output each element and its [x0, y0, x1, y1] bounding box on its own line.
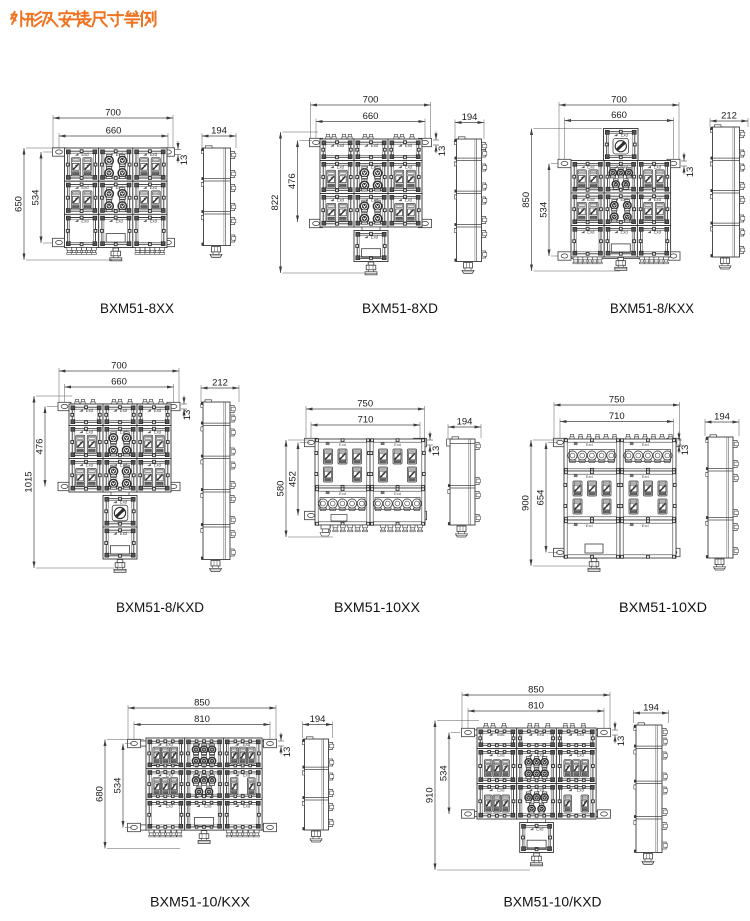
svg-text:750: 750: [609, 395, 625, 406]
svg-text:Exd: Exd: [339, 442, 346, 447]
svg-text:13: 13: [685, 167, 696, 178]
svg-text:0 1: 0 1: [618, 155, 623, 159]
svg-text:Exd: Exd: [577, 732, 585, 737]
svg-text:Exd: Exd: [654, 165, 662, 170]
svg-text:660: 660: [106, 126, 122, 137]
svg-text:710: 710: [358, 415, 374, 426]
svg-text:BXM51-8/KXX: BXM51-8/KXX: [610, 300, 695, 316]
svg-text:Exd: Exd: [337, 198, 345, 203]
svg-text:BXM51-8XD: BXM51-8XD: [362, 300, 438, 316]
svg-text:710: 710: [609, 411, 625, 422]
svg-text:194: 194: [643, 703, 659, 714]
svg-text:Exd: Exd: [166, 773, 174, 778]
svg-text:Exd: Exd: [537, 732, 545, 737]
svg-text:0 1: 0 1: [118, 521, 123, 525]
svg-text:194: 194: [310, 714, 326, 725]
svg-text:910: 910: [425, 787, 436, 803]
svg-text:Exd: Exd: [497, 732, 505, 737]
svg-text:Exd: Exd: [620, 230, 628, 235]
svg-text:660: 660: [363, 111, 379, 122]
svg-text:Exd: Exd: [337, 165, 345, 170]
svg-text:Exd: Exd: [587, 197, 595, 202]
svg-text:1015: 1015: [24, 471, 35, 492]
svg-text:Exd: Exd: [586, 442, 593, 447]
svg-text:Exd: Exd: [577, 753, 585, 758]
svg-text:660: 660: [611, 110, 627, 121]
svg-text:Exd: Exd: [81, 218, 89, 223]
svg-text:534: 534: [439, 765, 450, 781]
svg-text:654: 654: [536, 490, 547, 506]
svg-text:Exd: Exd: [587, 230, 595, 235]
svg-text:Exd: Exd: [86, 463, 94, 468]
svg-text:900: 900: [521, 495, 532, 511]
svg-text:850: 850: [521, 192, 532, 208]
svg-text:Exd: Exd: [621, 133, 629, 138]
svg-text:Exd: Exd: [642, 474, 649, 479]
svg-text:Exd: Exd: [654, 197, 662, 202]
svg-text:Exd: Exd: [150, 218, 158, 223]
svg-text:Exd: Exd: [116, 218, 124, 223]
svg-text:13: 13: [282, 747, 293, 758]
svg-text:BXM51-10XX: BXM51-10XX: [334, 599, 421, 615]
svg-text:476: 476: [35, 439, 46, 455]
svg-text:Exd: Exd: [339, 491, 346, 496]
svg-text:Exd: Exd: [166, 742, 174, 747]
svg-text:13: 13: [616, 736, 627, 747]
svg-text:Exd: Exd: [150, 185, 158, 190]
svg-text:Exd: Exd: [405, 143, 413, 148]
svg-text:Exd: Exd: [243, 742, 251, 747]
svg-text:Exd: Exd: [243, 803, 251, 808]
svg-text:Exd: Exd: [243, 773, 251, 778]
svg-text:Exd: Exd: [394, 442, 401, 447]
svg-text:Exd: Exd: [154, 430, 162, 435]
svg-text:700: 700: [111, 361, 127, 372]
svg-text:Exd: Exd: [371, 235, 379, 240]
svg-text:Exd: Exd: [536, 827, 544, 832]
svg-text:750: 750: [357, 399, 373, 410]
svg-text:194: 194: [457, 417, 473, 428]
svg-text:850: 850: [528, 685, 544, 696]
svg-text:Exd: Exd: [642, 442, 649, 447]
svg-text:BXM51-8/KXD: BXM51-8/KXD: [116, 599, 204, 615]
svg-text:13: 13: [182, 410, 193, 421]
svg-text:Exd: Exd: [150, 152, 158, 157]
svg-text:194: 194: [211, 126, 227, 137]
svg-text:452: 452: [288, 471, 299, 487]
svg-text:Exd: Exd: [586, 474, 593, 479]
svg-text:Exd: Exd: [394, 491, 401, 496]
svg-text:Exd: Exd: [120, 531, 128, 536]
svg-text:Exd: Exd: [120, 500, 128, 505]
svg-text:194: 194: [714, 412, 730, 423]
svg-text:650: 650: [14, 196, 25, 212]
svg-text:194: 194: [462, 112, 478, 123]
svg-text:Exd: Exd: [654, 230, 662, 235]
svg-text:700: 700: [105, 108, 121, 119]
svg-text:700: 700: [363, 95, 379, 106]
svg-text:Exd: Exd: [120, 408, 128, 413]
svg-text:212: 212: [212, 378, 228, 389]
svg-text:212: 212: [721, 111, 737, 122]
svg-text:534: 534: [539, 202, 550, 218]
svg-text:810: 810: [528, 701, 544, 712]
svg-text:580: 580: [276, 481, 287, 497]
svg-text:Exd: Exd: [154, 463, 162, 468]
svg-text:Exd: Exd: [577, 788, 585, 793]
svg-text:Exd: Exd: [371, 143, 379, 148]
svg-text:822: 822: [270, 195, 281, 211]
svg-text:850: 850: [194, 698, 210, 709]
svg-text:660: 660: [111, 377, 127, 388]
svg-text:476: 476: [287, 173, 298, 189]
svg-text:Exd: Exd: [154, 408, 162, 413]
svg-text:Exd: Exd: [497, 753, 505, 758]
svg-text:Exd: Exd: [587, 165, 595, 170]
svg-text:810: 810: [194, 714, 210, 725]
svg-text:Exd: Exd: [204, 803, 212, 808]
svg-text:680: 680: [95, 786, 106, 802]
svg-text:Exd: Exd: [81, 152, 89, 157]
svg-text:BXM51-8XX: BXM51-8XX: [100, 300, 175, 316]
svg-text:Exd: Exd: [642, 523, 649, 528]
svg-text:13: 13: [437, 146, 448, 157]
svg-text:Exd: Exd: [497, 788, 505, 793]
svg-text:13: 13: [431, 446, 442, 457]
svg-text:BXM51-10/KXX: BXM51-10/KXX: [150, 894, 251, 910]
svg-text:Exd: Exd: [86, 430, 94, 435]
svg-text:Exd: Exd: [81, 185, 89, 190]
svg-text:Exd: Exd: [586, 523, 593, 528]
svg-text:BXM51-10/KXD: BXM51-10/KXD: [504, 894, 602, 910]
svg-text:13: 13: [680, 445, 691, 456]
svg-text:Exd: Exd: [86, 408, 94, 413]
svg-text:534: 534: [113, 778, 124, 794]
svg-text:534: 534: [31, 190, 42, 206]
svg-text:Exd: Exd: [337, 143, 345, 148]
svg-text:BXM51-10XD: BXM51-10XD: [619, 599, 707, 615]
svg-text:Exd: Exd: [405, 198, 413, 203]
svg-text:700: 700: [611, 95, 627, 106]
svg-text:Exd: Exd: [166, 803, 174, 808]
svg-text:13: 13: [179, 155, 190, 166]
svg-text:Exd: Exd: [405, 165, 413, 170]
